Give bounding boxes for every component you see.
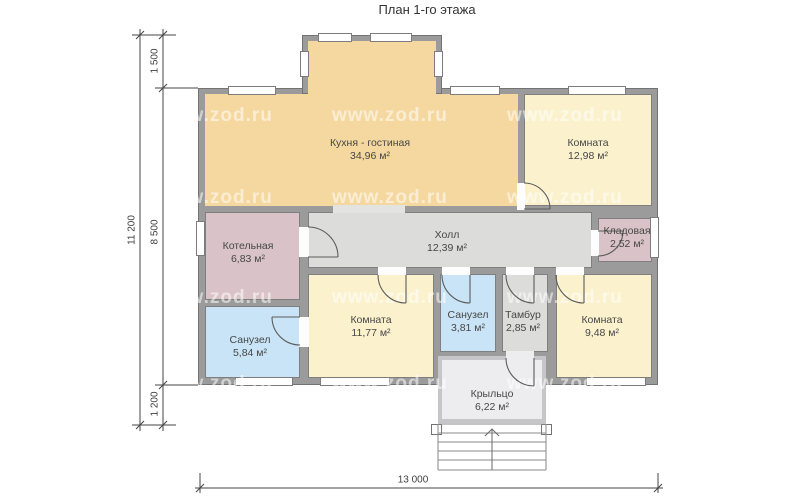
door-gap-tambour — [506, 267, 534, 275]
room-name: Котельная — [223, 240, 274, 252]
watermark: www.zod.ru — [682, 187, 795, 209]
dim-ticks-horizontal — [196, 484, 662, 492]
room-label-porch: Крыльцо 6,22 м² — [471, 388, 514, 414]
dim-total-width: 13 000 — [398, 475, 429, 486]
room-name: Холл — [435, 229, 460, 241]
window-bay-top-right — [370, 33, 412, 42]
room-area: 11,77 м² — [351, 327, 390, 339]
room-area: 6,22 м² — [475, 401, 509, 413]
room-label-hall: Холл 12,39 м² — [427, 229, 467, 255]
room-name: Комната — [581, 314, 622, 326]
window-room-11-77-bottom — [320, 377, 390, 386]
door-gap-room-11-77 — [378, 267, 406, 275]
room-area: 12,39 м² — [427, 242, 467, 254]
porch-post-right — [541, 424, 552, 435]
room-label-bathroom-3-81: Санузел 3,81 м² — [448, 309, 489, 335]
door-gap-room-9-48 — [556, 267, 584, 275]
porch-stairs — [438, 424, 546, 470]
room-name: Комната — [350, 314, 391, 326]
window-room-12-98-top — [568, 86, 626, 95]
room-name: Санузел — [448, 309, 489, 321]
window-boiler-left — [196, 221, 205, 256]
window-storage-right — [650, 217, 659, 258]
door-gap-room-12-98 — [517, 183, 525, 210]
room-area: 2,85 м² — [506, 322, 540, 334]
door-gap-bathroom-3-81 — [442, 267, 470, 275]
room-kitchen-bay-fill — [308, 41, 436, 101]
opening-kitchen-hall — [333, 205, 405, 213]
room-label-12-98: Комната 12,98 м² — [567, 137, 608, 163]
window-kitchen-top-right — [450, 86, 500, 95]
dim-porch-depth: 1 200 — [150, 391, 161, 416]
room-area: 12,98 м² — [568, 150, 608, 162]
stairs-up-arrow — [485, 429, 499, 436]
dim-main-height: 8 500 — [150, 219, 161, 244]
room-area: 34,96 м² — [350, 150, 390, 162]
room-name: Тамбур — [505, 309, 541, 321]
dim-extension-lines-bottom — [200, 473, 658, 493]
window-bathroom-5-84-bottom — [235, 377, 293, 386]
window-bay-top-left — [318, 33, 352, 42]
dim-total-height: 11 200 — [127, 215, 138, 245]
watermark: www.zod.ru — [682, 105, 795, 127]
room-name: Комната — [567, 137, 608, 149]
door-gap-boiler — [299, 227, 309, 257]
window-kitchen-top-left — [228, 86, 276, 95]
room-label-kitchen-living: Кухня - гостиная 34,96 м² — [330, 137, 410, 163]
room-area: 2,52 м² — [610, 238, 644, 250]
room-area: 6,83 м² — [231, 253, 265, 265]
room-label-tambour: Тамбур 2,85 м² — [505, 309, 541, 335]
page-title: План 1-го этажа — [378, 2, 475, 17]
window-bay-left — [300, 51, 309, 77]
room-area: 5,84 м² — [233, 347, 267, 359]
dim-bay-depth: 1 500 — [150, 48, 161, 73]
floor-plan-page: План 1-го этажа www.zod.ru www.zod.ru ww… — [0, 0, 795, 496]
room-area: 9,48 м² — [585, 327, 619, 339]
room-name: Санузел — [230, 334, 271, 346]
watermark: www.zod.ru — [682, 287, 795, 309]
dim-extension-lines-left — [132, 35, 198, 425]
room-label-9-48: Комната 9,48 м² — [581, 314, 622, 340]
room-label-bathroom-5-84: Санузел 5,84 м² — [230, 334, 271, 360]
watermark: www.zod.ru — [682, 373, 795, 395]
room-label-storage: Кладовая 2,52 м² — [603, 225, 650, 251]
room-name: Крыльцо — [471, 388, 514, 400]
room-area: 3,81 м² — [451, 322, 485, 334]
room-name: Кухня - гостиная — [330, 137, 410, 149]
room-label-boiler: Котельная 6,83 м² — [223, 240, 274, 266]
window-room-9-48-bottom — [586, 377, 646, 386]
door-gap-storage — [591, 230, 599, 256]
window-bay-right — [434, 51, 443, 77]
door-gap-bathroom-5-84 — [299, 317, 309, 347]
room-name: Кладовая — [603, 225, 650, 237]
room-label-11-77: Комната 11,77 м² — [350, 314, 391, 340]
porch-post-left — [431, 424, 442, 435]
door-gap-tambour-porch — [506, 351, 534, 361]
